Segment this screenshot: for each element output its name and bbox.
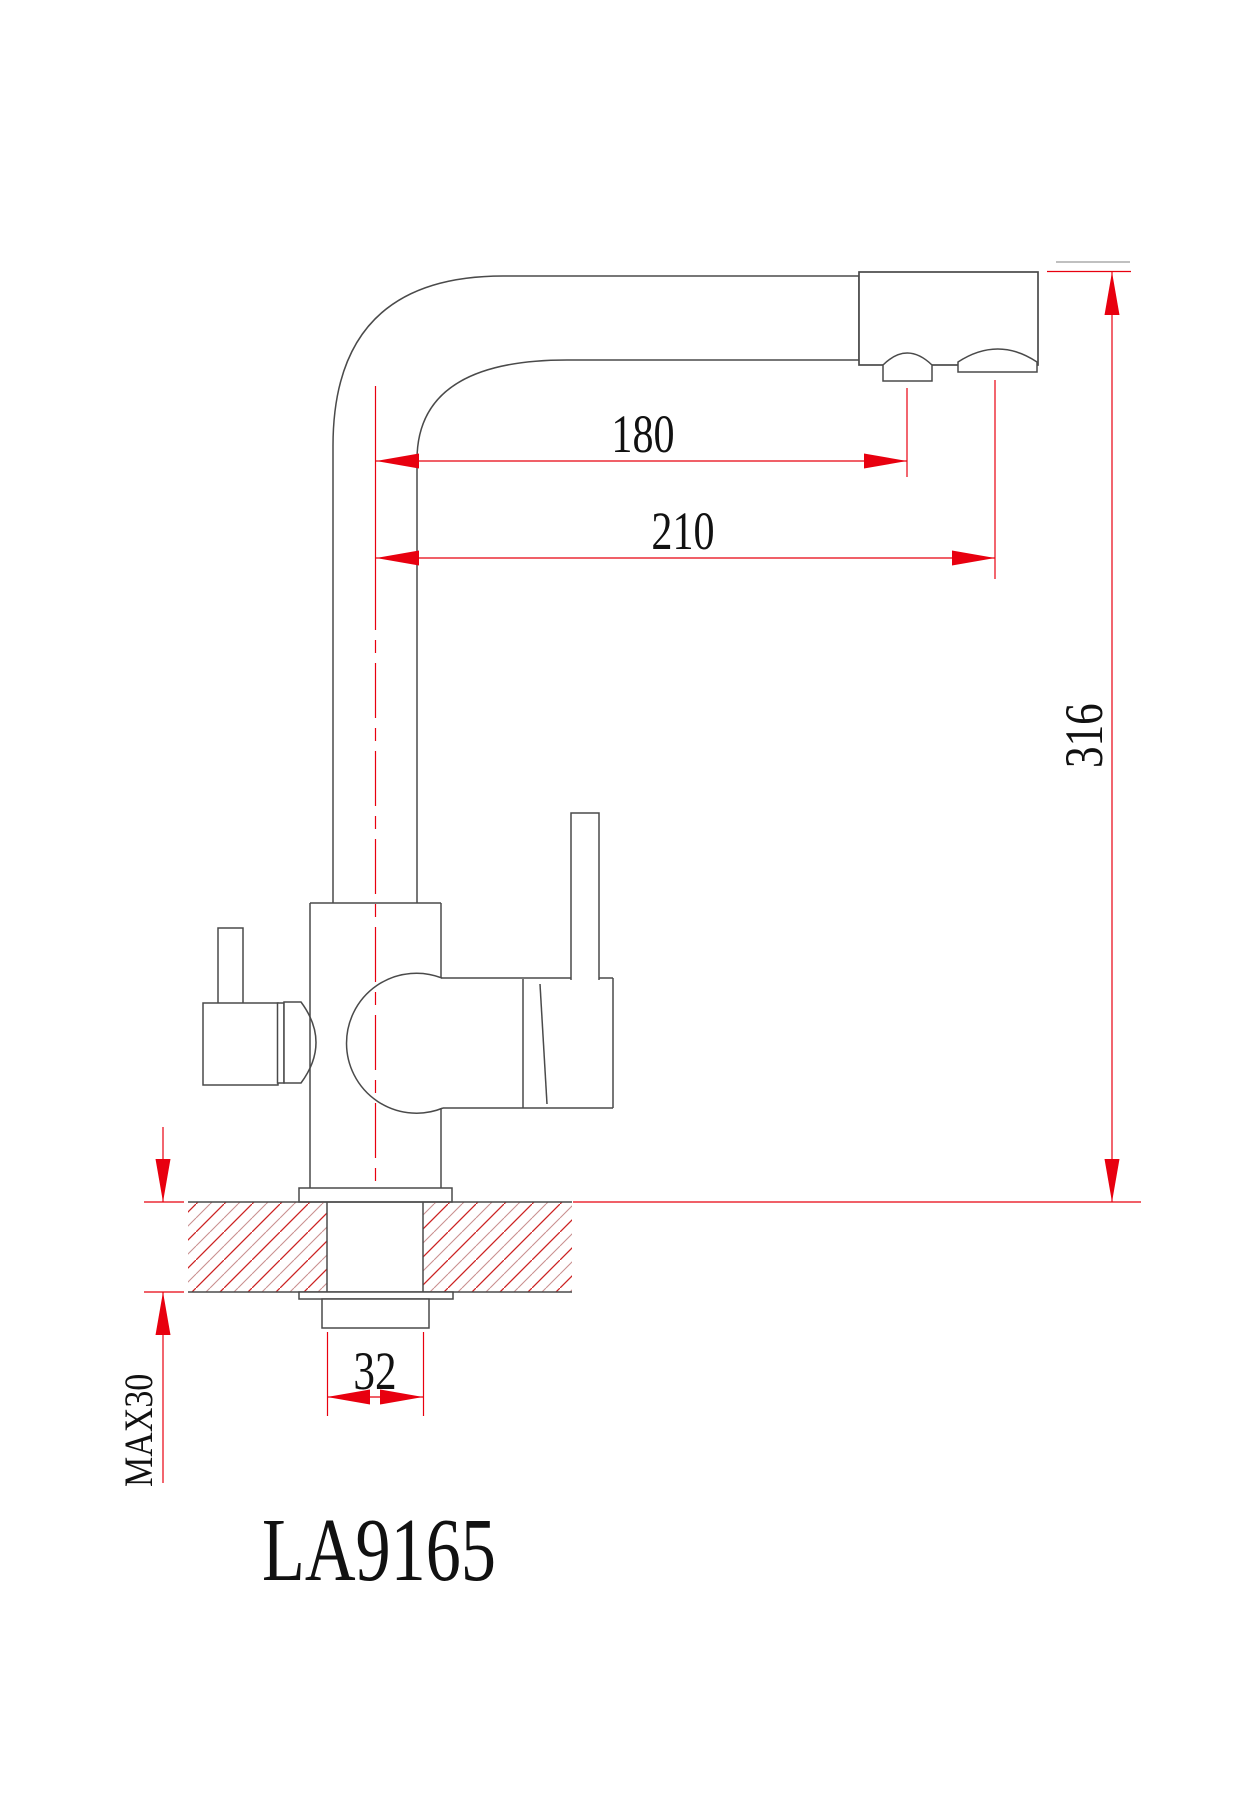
right-collar-tilt-line [540, 984, 547, 1104]
spout-tube [333, 276, 859, 905]
countertop-hatch-right [423, 1202, 572, 1292]
model-number: LA9165 [262, 1501, 496, 1600]
label-spout-height: 316 [1053, 703, 1114, 768]
right-handle-lever [571, 813, 599, 980]
faucet-dimension-drawing: 180 210 316 32 MAX30 LA9165 [0, 0, 1255, 1800]
left-handle-base [203, 1003, 278, 1085]
base-flange [299, 1188, 452, 1202]
left-valve-collar [278, 1003, 285, 1083]
mounting-nut [322, 1299, 429, 1328]
technical-drawing-page: 180 210 316 32 MAX30 LA9165 [0, 0, 1255, 1800]
left-handle-lever [218, 928, 243, 1003]
dim-316-arrow-up [1105, 272, 1120, 315]
label-shank-width: 32 [353, 1340, 396, 1401]
label-max-counter-thickness: MAX30 [118, 1374, 162, 1487]
dim-316-arrow-down [1105, 1159, 1120, 1202]
mounting-washer [299, 1292, 453, 1299]
dim-max30-arrow-up [156, 1292, 171, 1335]
label-spout-reach: 180 [611, 405, 674, 464]
dim-210-arrow-right [952, 551, 995, 566]
dim-max30-arrow-down [156, 1159, 171, 1202]
label-spout-reach-outer: 210 [651, 502, 714, 561]
dim-180-arrow-right [864, 454, 907, 469]
countertop-hatch-left [188, 1202, 327, 1292]
